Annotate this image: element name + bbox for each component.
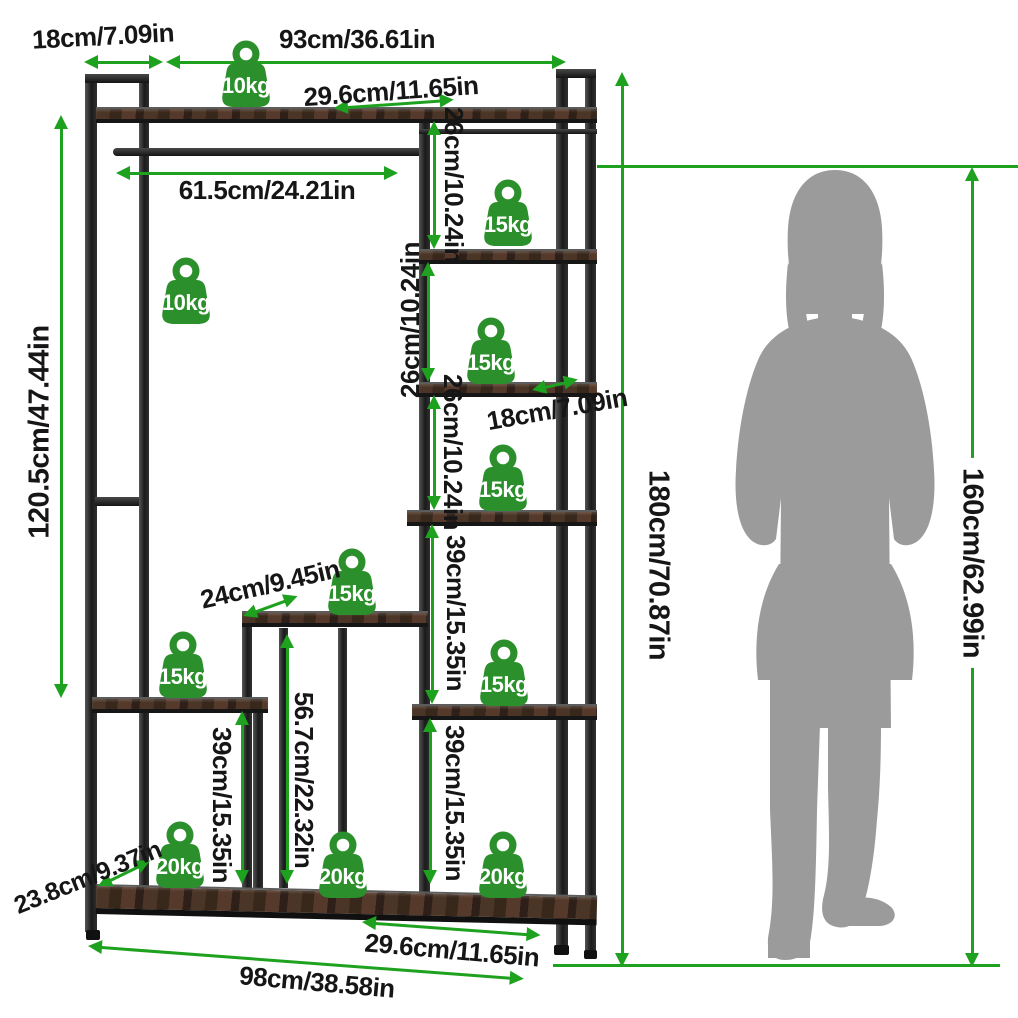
badge-label: 15kg — [471, 672, 537, 698]
dim-label-gap-39-right-lower: 39cm/15.35in — [442, 725, 468, 881]
weight-badge-tower-4: 15kg — [471, 638, 537, 710]
badge-label: 10kg — [213, 73, 279, 99]
left-top-connector — [85, 74, 149, 83]
left-back-post — [139, 77, 149, 889]
dim-label-person-height: 160cm/62.99in — [958, 458, 987, 668]
right-top-connector — [556, 69, 596, 78]
dim-label-left-height: 120.5cm/47.44in — [26, 325, 55, 538]
dim-label-top-depth: 18cm/7.09in — [31, 19, 174, 52]
right-back-foot — [584, 950, 597, 959]
right-front-post — [556, 69, 568, 947]
dim-arrow-gap-39-left — [235, 711, 249, 884]
head-height-line — [597, 165, 1018, 168]
dimension-diagram: 10kg 10kg 15kg 15kg 15kg 15kg 15kg 15kg … — [0, 0, 1018, 1018]
dim-label-mid-column-height: 56.7cm/22.32in — [291, 692, 317, 869]
dim-arrow-total-height — [615, 72, 629, 967]
badge-label: 10kg — [153, 290, 219, 316]
weight-badge-rod: 10kg — [153, 256, 219, 328]
badge-label: 20kg — [470, 864, 536, 890]
dim-arrow-gap-39-right-lower — [423, 718, 437, 884]
badge-label: 20kg — [310, 864, 376, 890]
weight-badge-base-middle: 20kg — [310, 830, 376, 902]
dim-label-gap-26-c: 26cm/10.24in — [440, 374, 466, 530]
dim-arrow-gap-39-right-upper — [425, 524, 439, 704]
dim-label-top-width: 93cm/36.61in — [279, 26, 435, 52]
dim-label-gap-39-right-upper: 39cm/15.35in — [443, 535, 469, 691]
dim-arrow-left-height — [54, 115, 68, 698]
hanging-rod — [113, 148, 428, 156]
dim-label-gap-26-b: 26cm/10.24in — [397, 242, 423, 398]
dim-arrow-top-depth — [84, 55, 163, 69]
weight-badge-base-right: 20kg — [470, 830, 536, 902]
dim-label-total-height: 180cm/70.87in — [644, 460, 673, 670]
badge-label: 15kg — [470, 477, 536, 503]
badge-label: 15kg — [458, 350, 524, 376]
weight-badge-top-shelf: 10kg — [213, 39, 279, 111]
weight-badge-left-shelf: 15kg — [150, 630, 216, 702]
weight-badge-tower-1: 15kg — [475, 178, 541, 250]
left-mid-connector — [95, 497, 139, 506]
right-front-foot — [554, 945, 569, 955]
weight-badge-tower-3: 15kg — [470, 443, 536, 515]
badge-label: 15kg — [150, 664, 216, 690]
dim-label-gap-26-a: 26cm/10.24in — [441, 107, 467, 263]
human-silhouette — [710, 168, 960, 966]
left-shelf-leg — [253, 708, 263, 888]
dim-label-gap-39-left: 39cm/15.35in — [209, 727, 235, 883]
badge-label: 15kg — [475, 212, 541, 238]
dim-label-rod-width: 61.5cm/24.21in — [179, 177, 356, 203]
